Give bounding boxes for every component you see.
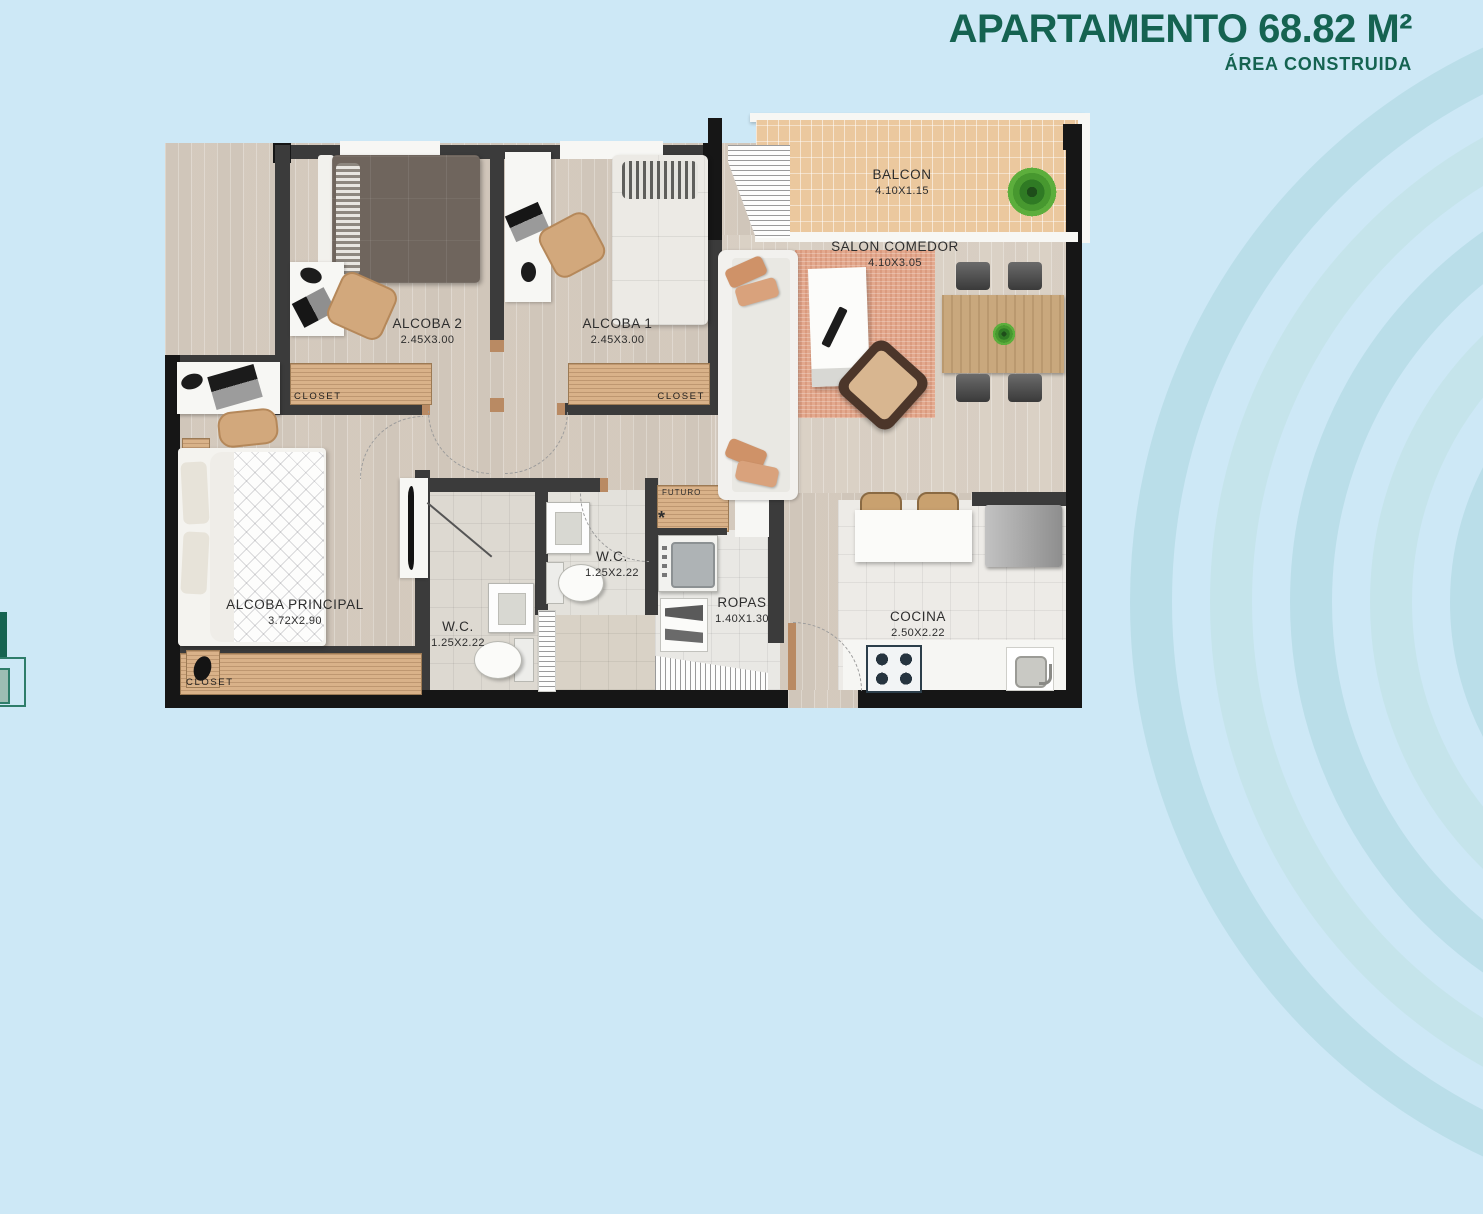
desk-chair (216, 407, 279, 449)
desk-alcoba1 (505, 152, 551, 302)
room-label-wc-upper: W.C. 1.25X2.22 (570, 548, 654, 580)
wall-alcoba-divider (490, 145, 504, 340)
tv-icon (408, 486, 414, 570)
dining-chair (956, 374, 990, 402)
page: { "header": { "title": "APARTAMENTO 68.8… (0, 0, 1483, 711)
pillow (180, 461, 209, 524)
room-dims: 1.25X2.22 (570, 566, 654, 580)
room-label-balcon: BALCON 4.10X1.15 (832, 166, 972, 198)
wall-outer-right (1066, 128, 1082, 708)
futuro-label: FUTURO (662, 488, 701, 497)
room-label-wc-lower: W.C. 1.25X2.22 (416, 618, 500, 650)
logo-bar (0, 612, 7, 658)
door-jamb (490, 398, 504, 412)
room-dims: 1.40X1.30 (704, 612, 780, 626)
closet-label-alcoba1: CLOSET (643, 391, 705, 402)
floor-shower-zone (552, 615, 655, 690)
pillow (622, 161, 698, 199)
centerpiece-plant-icon (992, 322, 1016, 346)
room-dims: 4.10X3.05 (815, 256, 975, 270)
mouse-icon (521, 262, 536, 282)
wall-kitchen-top (972, 492, 1066, 506)
laundry-shelf (660, 598, 708, 652)
page-title: APARTAMENTO 68.82 M² (949, 8, 1412, 50)
entry-threshold (788, 690, 858, 708)
room-name: BALCON (832, 166, 972, 184)
room-dims: 2.45X3.00 (355, 333, 500, 347)
room-name: SALON COMEDOR (815, 238, 975, 256)
fridge (985, 505, 1062, 567)
faucet-icon (1039, 664, 1052, 685)
wall-post (1063, 124, 1082, 150)
tv-panel (400, 478, 428, 578)
wall-wc-top (415, 478, 600, 492)
page-subtitle: ÁREA CONSTRUIDA (949, 54, 1412, 75)
bed-alcoba1 (612, 155, 708, 325)
pillow (180, 531, 209, 594)
room-label-alcoba2: ALCOBA 2 2.45X3.00 (355, 315, 500, 347)
room-label-salon: SALON COMEDOR 4.10X3.05 (815, 238, 975, 270)
headphones-icon (298, 265, 324, 286)
room-label-cocina: COCINA 2.50X2.22 (858, 608, 978, 640)
shower-head (555, 512, 582, 545)
washer-door (671, 542, 715, 588)
room-dims: 2.50X2.22 (858, 626, 978, 640)
room-label-ropas: ROPAS 1.40X1.30 (704, 594, 780, 626)
closet-label-principal: CLOSET (186, 677, 234, 688)
stove-icon (866, 645, 922, 693)
closet-label-alcoba2: CLOSET (294, 391, 342, 402)
shelf-item (665, 605, 703, 621)
closet-futuro-trim (657, 528, 727, 535)
room-dims: 4.10X1.15 (832, 184, 972, 198)
laptop-icon (207, 364, 263, 410)
remote-icon (821, 306, 848, 348)
room-name: ALCOBA 2 (355, 315, 500, 333)
futuro-asterisk: * (658, 508, 666, 529)
pillow (336, 163, 360, 275)
headphones-icon (179, 371, 205, 392)
room-label-alcoba1: ALCOBA 1 2.45X3.00 (545, 315, 690, 347)
vent-shaft (538, 610, 556, 692)
room-name: ALCOBA PRINCIPAL (210, 596, 380, 614)
washer-buttons (662, 546, 667, 580)
ring-icon (1130, 0, 1483, 1214)
room-name: ALCOBA 1 (545, 315, 690, 333)
header: APARTAMENTO 68.82 M² ÁREA CONSTRUIDA (949, 8, 1412, 75)
room-name: COCINA (858, 608, 978, 626)
desk-principal (177, 362, 280, 414)
room-name: ROPAS (704, 594, 780, 612)
sink-icon (1006, 647, 1054, 691)
kitchen-peninsula-counter (855, 510, 972, 562)
door-jamb (600, 478, 608, 492)
room-dims: 3.72X2.90 (210, 614, 380, 628)
floor-plan: CLOSET CLOSET CLOSET FUTURO * BALCON 4.1… (160, 110, 1100, 710)
washer-icon (658, 535, 718, 592)
dining-chair (1008, 374, 1042, 402)
room-dims: 1.25X2.22 (416, 636, 500, 650)
logo-teal-square (0, 668, 10, 704)
room-dims: 2.45X3.00 (545, 333, 690, 347)
room-label-principal: ALCOBA PRINCIPAL 3.72X2.90 (210, 596, 380, 628)
plant-icon (1006, 166, 1058, 218)
dining-chair (1008, 262, 1042, 290)
shower-head (498, 593, 526, 625)
room-name: W.C. (416, 618, 500, 636)
shelf-item (665, 627, 703, 643)
room-name: W.C. (570, 548, 654, 566)
wall-entry-column (708, 118, 722, 240)
